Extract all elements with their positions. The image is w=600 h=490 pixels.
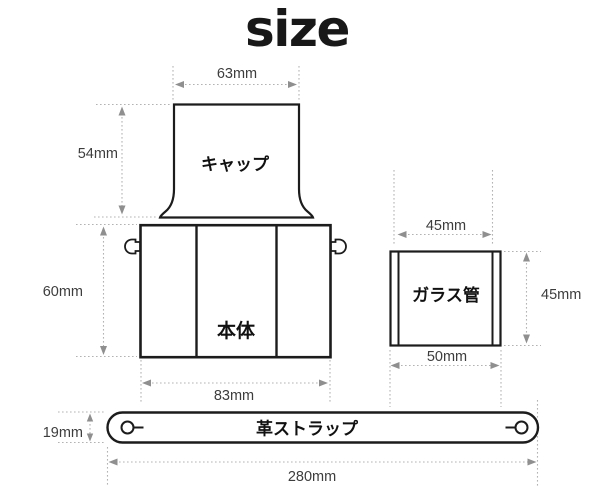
body-right-clip [331, 240, 346, 254]
body-group: 本体 [125, 225, 346, 357]
glass-tube-group: ガラス管 [391, 252, 501, 346]
dim-cap-height-value: 54mm [78, 146, 118, 162]
arrowhead [119, 107, 126, 116]
dim-body-height-value: 60mm [43, 284, 83, 300]
arrowhead [119, 206, 126, 215]
size-diagram-page: size キャップ [0, 0, 600, 490]
body-left-clip [125, 240, 140, 254]
arrowhead [523, 335, 530, 344]
size-diagram: size キャップ [0, 0, 600, 490]
cap-group: キャップ [160, 105, 313, 218]
arrowhead [483, 231, 492, 238]
body-label: 本体 [217, 319, 256, 342]
glass-tube-label: ガラス管 [412, 285, 480, 305]
arrowhead [87, 414, 93, 422]
cap-label: キャップ [201, 154, 270, 174]
arrowhead [100, 227, 107, 236]
strap-group: 革ストラップ [108, 413, 539, 443]
arrowhead [175, 81, 184, 88]
arrowhead [391, 362, 400, 369]
arrowhead [491, 362, 500, 369]
arrowhead [142, 380, 151, 387]
strap-label: 革ストラップ [256, 419, 359, 439]
arrowhead [288, 81, 297, 88]
arrowhead [100, 346, 107, 355]
arrowhead [528, 459, 537, 466]
arrowhead [109, 459, 118, 466]
dim-glass-height-value: 45mm [541, 287, 581, 303]
dim-strap-height-value: 19mm [43, 425, 83, 441]
arrowhead [523, 253, 530, 262]
page-title: size [245, 0, 349, 58]
dim-glass-bottom-width-value: 50mm [427, 349, 467, 365]
arrowhead [319, 380, 328, 387]
arrowhead [87, 434, 93, 442]
dim-cap-width-value: 63mm [217, 66, 257, 82]
arrowhead [398, 231, 407, 238]
dim-strap-length-value: 280mm [288, 469, 336, 485]
dim-glass-top-width-value: 45mm [426, 218, 466, 234]
dim-body-width-value: 83mm [214, 388, 254, 404]
